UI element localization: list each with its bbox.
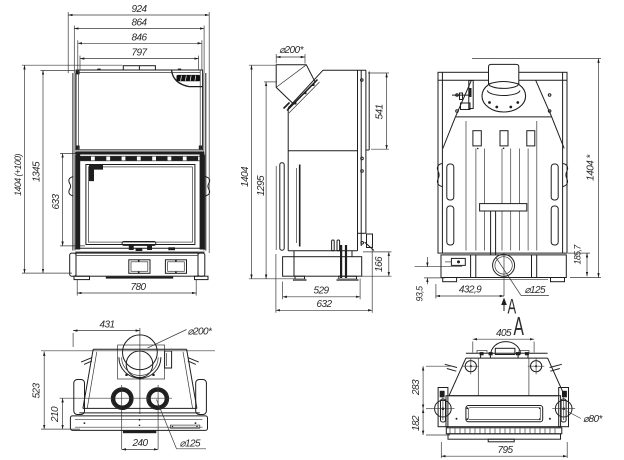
svg-text:541: 541 (375, 104, 386, 119)
svg-text:846: 846 (131, 32, 147, 43)
svg-text:⌀200*: ⌀200* (188, 327, 214, 338)
svg-text:283: 283 (411, 379, 422, 396)
svg-text:⌀200*: ⌀200* (279, 45, 305, 56)
svg-text:182: 182 (411, 415, 422, 431)
svg-text:1404: 1404 (240, 166, 251, 187)
svg-text:210: 210 (50, 406, 61, 423)
svg-text:864: 864 (131, 18, 147, 29)
svg-text:240: 240 (131, 438, 148, 449)
svg-text:797: 797 (131, 48, 147, 59)
svg-text:1404 *: 1404 * (586, 154, 597, 181)
svg-text:1404 (+100): 1404 (+100) (13, 154, 23, 196)
svg-text:⌀125: ⌀125 (180, 438, 201, 449)
svg-text:93,5: 93,5 (414, 286, 424, 302)
svg-text:431: 431 (99, 320, 114, 331)
svg-text:⌀125: ⌀125 (525, 285, 546, 296)
svg-text:523: 523 (32, 383, 43, 399)
svg-text:1295: 1295 (256, 175, 267, 196)
svg-text:166: 166 (374, 256, 385, 272)
svg-text:795: 795 (497, 445, 513, 456)
svg-text:⌀80*: ⌀80* (583, 414, 603, 425)
svg-text:1345: 1345 (32, 161, 43, 182)
svg-text:432,9: 432,9 (459, 285, 482, 296)
svg-text:632: 632 (316, 299, 332, 310)
svg-text:924: 924 (131, 4, 147, 15)
svg-text:529: 529 (313, 286, 329, 297)
svg-text:633: 633 (51, 194, 62, 210)
svg-text:A: A (514, 312, 525, 341)
svg-text:185,7: 185,7 (573, 244, 583, 265)
svg-text:405: 405 (496, 328, 512, 339)
svg-text:780: 780 (130, 282, 146, 293)
